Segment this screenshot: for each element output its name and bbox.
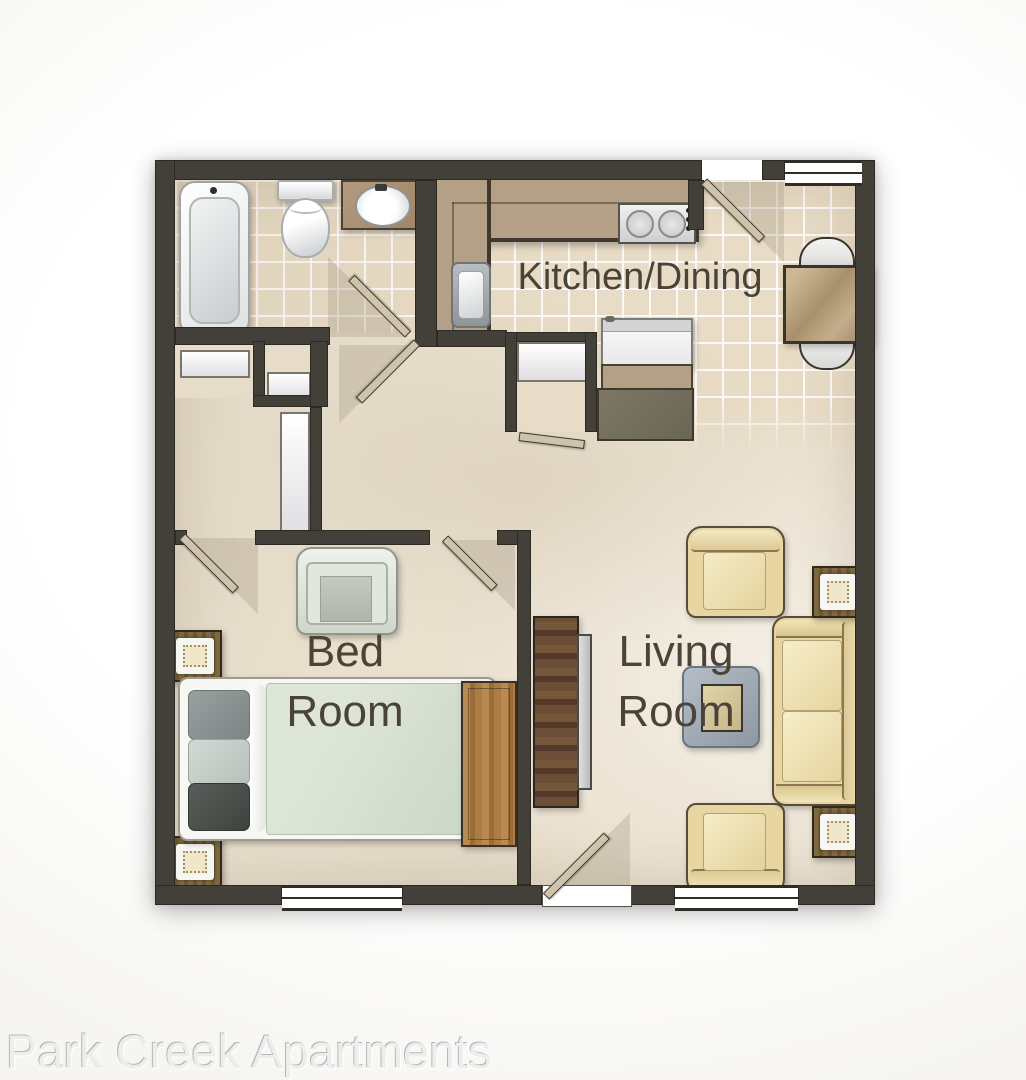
hall-pocket-door: [280, 412, 310, 536]
burner-icon: [626, 210, 654, 238]
wall: [855, 160, 875, 905]
dresser-center-panel: [320, 576, 372, 622]
refrigerator-handle-icon: [605, 316, 615, 322]
pillow: [188, 783, 250, 831]
living-room-label-line1: Living: [586, 622, 766, 682]
wall: [155, 885, 282, 905]
dining-tile-fade: [695, 402, 855, 454]
wall-hall: [310, 341, 328, 407]
wall-bathroom-kitchen: [415, 180, 437, 347]
armchair-seat: [703, 813, 766, 871]
bedroom-label-line2: Room: [255, 682, 435, 742]
toilet-seat-line: [289, 202, 322, 214]
lamp-shade-icon: [183, 851, 207, 873]
cooktop: [618, 203, 696, 244]
wall-entry-jamb: [688, 180, 704, 230]
wall-kitchen-bottom: [437, 330, 507, 347]
kitchen-dining-label: Kitchen/Dining: [470, 252, 810, 302]
chest-of-drawers: [461, 681, 517, 847]
bedroom-label: Bed Room: [255, 622, 435, 742]
wall: [155, 160, 702, 180]
refrigerator-freezer-band: [603, 320, 691, 332]
vanity-counter: [341, 180, 424, 230]
wall-kitchen-closet: [505, 332, 517, 432]
closet-a-door: [180, 350, 250, 378]
lamp-shade-icon: [827, 821, 849, 843]
faucet-icon: [375, 184, 387, 191]
chest-edge-line: [468, 688, 510, 840]
bedroom-label-line1: Bed: [255, 622, 435, 682]
wall-kitchen-closet: [585, 332, 597, 432]
pillow: [188, 690, 250, 740]
wall: [798, 885, 875, 905]
window: [675, 885, 798, 911]
nightstand-lamp: [168, 836, 222, 888]
wall: [155, 160, 175, 905]
living-room-label-line2: Room: [586, 682, 766, 742]
sofa-cushion: [782, 711, 842, 782]
vanity-sink: [355, 185, 411, 227]
wall: [762, 160, 785, 180]
toilet-bowl: [281, 198, 330, 258]
refrigerator: [601, 318, 693, 368]
burner-icon: [658, 210, 686, 238]
armchair-seat: [703, 552, 766, 610]
lamp-shade-icon: [183, 645, 207, 667]
nightstand-lamp: [168, 630, 222, 682]
tv-console: [533, 616, 579, 808]
bathtub-drain: [210, 187, 217, 194]
wall: [630, 885, 675, 905]
floor-plan-canvas: Kitchen/Dining Bed Room Living Room Park…: [0, 0, 1026, 1080]
wall-hall: [310, 407, 322, 545]
wall-kitchen-closet: [505, 332, 597, 342]
window: [785, 160, 862, 186]
bathtub-basin: [189, 197, 240, 324]
armchair: [686, 526, 785, 618]
kitchen-closet-door: [517, 342, 587, 382]
sofa-arm: [776, 620, 842, 638]
wall-bedroom-top: [255, 530, 430, 545]
sofa-cushion: [782, 640, 842, 711]
wall-bedroom-living-divider: [517, 530, 531, 885]
lamp-shade-icon: [827, 581, 849, 603]
kitchen-tall-cabinet: [597, 388, 694, 441]
armchair: [686, 803, 785, 895]
sofa-arm: [776, 784, 842, 802]
wall: [402, 885, 542, 905]
sofa: [772, 616, 868, 806]
bathtub: [179, 181, 250, 336]
living-room-label: Living Room: [586, 622, 766, 742]
brand-watermark: Park Creek Apartments: [6, 1026, 492, 1078]
window: [282, 885, 402, 911]
pillow: [188, 739, 250, 785]
armchair-back: [691, 530, 780, 552]
